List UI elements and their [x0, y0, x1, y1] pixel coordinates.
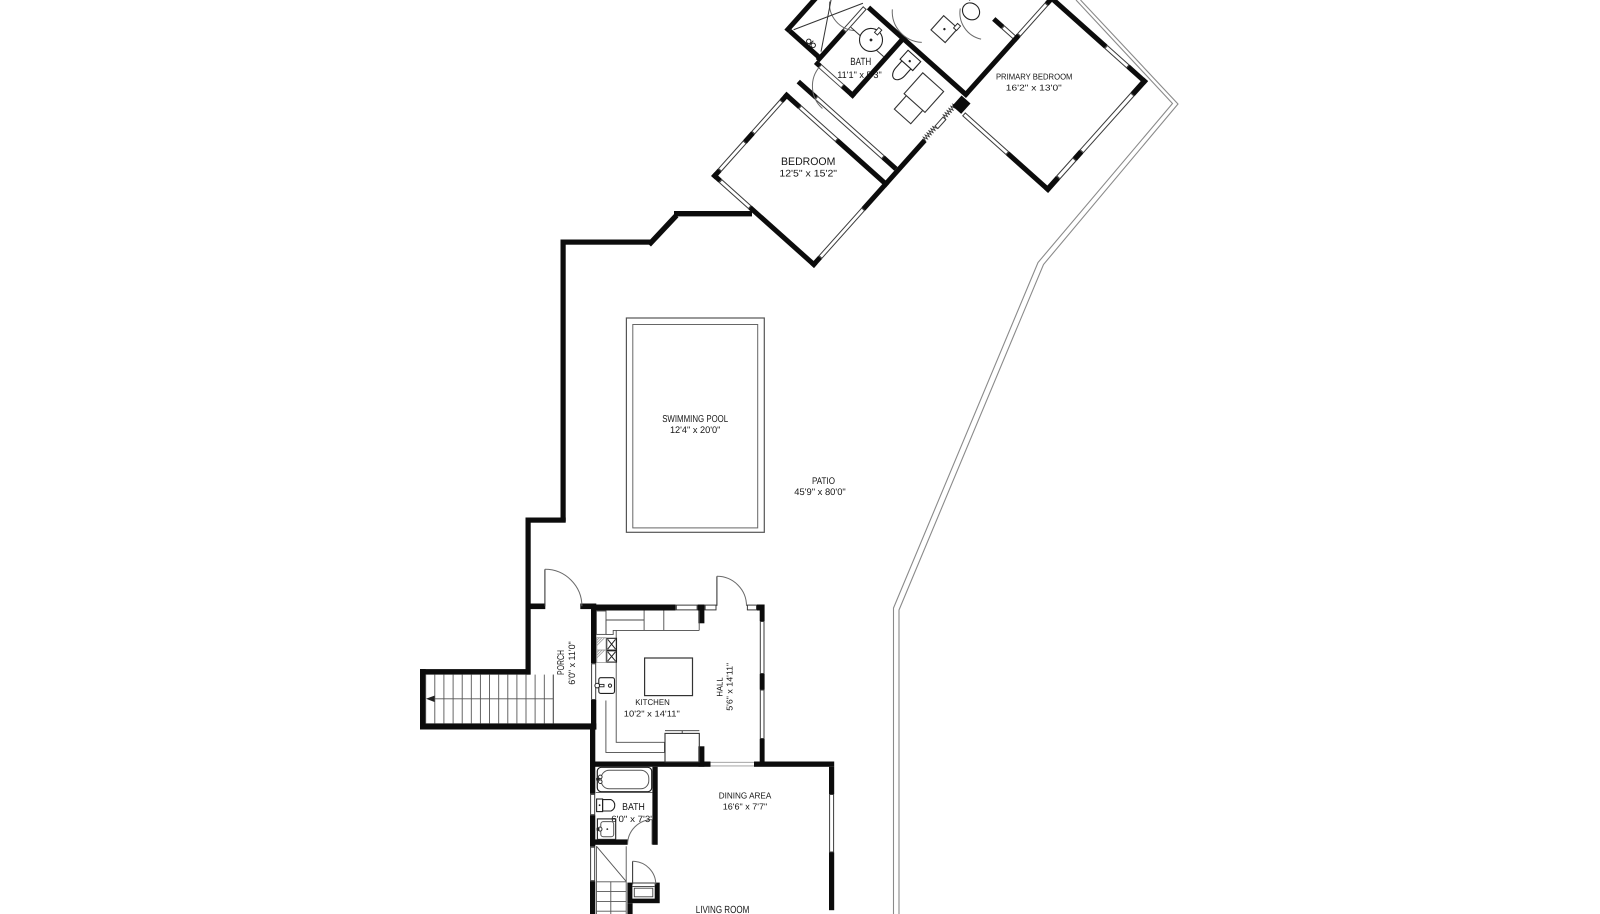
svg-text:6'0" x 7'3": 6'0" x 7'3"	[611, 814, 654, 824]
svg-text:PORCH: PORCH	[556, 650, 567, 675]
svg-text:HALL: HALL	[715, 677, 725, 697]
svg-text:BEDROOM: BEDROOM	[781, 156, 835, 168]
svg-text:BATH: BATH	[850, 56, 871, 68]
svg-text:LIVING ROOM: LIVING ROOM	[696, 905, 750, 914]
svg-text:DINING AREA: DINING AREA	[719, 791, 772, 801]
svg-text:5'6" x 14'11": 5'6" x 14'11"	[725, 663, 735, 711]
svg-text:PRIMARY BEDROOM: PRIMARY BEDROOM	[996, 71, 1073, 81]
svg-text:45'9" x 80'0": 45'9" x 80'0"	[794, 487, 846, 498]
svg-text:12'4" x 20'0": 12'4" x 20'0"	[670, 425, 721, 436]
svg-text:BATH: BATH	[622, 802, 645, 813]
svg-text:PATIO: PATIO	[812, 476, 835, 487]
svg-text:12'5" x 15'2": 12'5" x 15'2"	[779, 168, 837, 179]
svg-text:11'1" x 5'3": 11'1" x 5'3"	[837, 70, 882, 81]
svg-text:16'2" x 13'0": 16'2" x 13'0"	[1006, 83, 1062, 93]
svg-text:10'2" x 14'11": 10'2" x 14'11"	[624, 709, 680, 719]
svg-text:SWIMMING POOL: SWIMMING POOL	[662, 414, 728, 425]
svg-text:16'6" x 7'7": 16'6" x 7'7"	[723, 802, 768, 812]
svg-text:KITCHEN: KITCHEN	[635, 697, 670, 707]
svg-text:6'0" x 11'0": 6'0" x 11'0"	[567, 641, 577, 685]
